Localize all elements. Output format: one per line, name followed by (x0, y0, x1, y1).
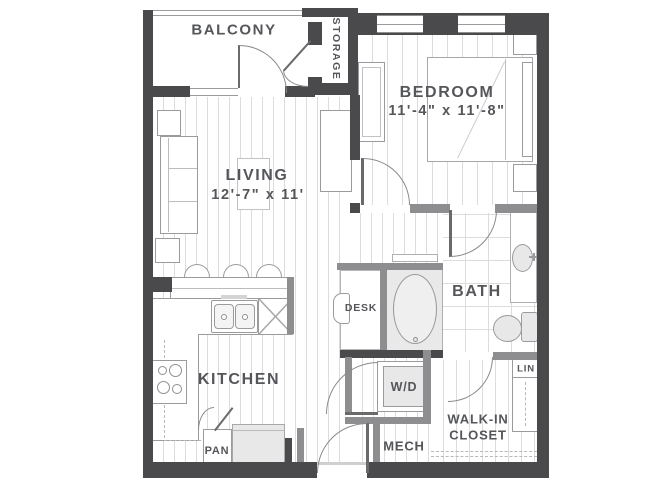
mech-label: MECH (383, 439, 424, 454)
washer-dryer-label: W/D (391, 380, 418, 394)
tub-drain (413, 337, 418, 342)
burner (157, 381, 170, 394)
balcony-fixed-glass (190, 88, 238, 96)
vanity-sink (512, 244, 533, 272)
bedroom-window (458, 15, 505, 33)
burner (172, 384, 182, 394)
wall-balcony-bottom-left (143, 86, 190, 97)
linen-label: LIN (517, 364, 535, 375)
wall-balcony-bottom-right (285, 86, 315, 97)
wall-living-bedroom (350, 95, 360, 160)
toilet-tank (521, 312, 538, 342)
closet-rod-dash (431, 456, 537, 457)
closet-rod-dash (431, 451, 537, 452)
wall-walkin-top (493, 352, 537, 360)
wall-mech-west (373, 423, 380, 462)
balcony-label: BALCONY (191, 22, 276, 39)
wall-bedroom-bottom-2 (495, 204, 537, 213)
wall-tub-west (380, 270, 387, 350)
kitchen-label: KITCHEN (198, 371, 280, 389)
sink-brand-label (221, 295, 247, 299)
bedroom-window (377, 15, 423, 33)
sofa-cushion-line (169, 201, 197, 202)
bath-label: BATH (452, 283, 502, 301)
wall-entry-stub-dark (285, 438, 292, 462)
end-table-top (157, 110, 181, 136)
wall-bedroom-bottom-1 (410, 204, 450, 213)
toilet-bowl (493, 315, 522, 342)
end-table-bottom (155, 238, 180, 263)
wall-entry-stub-gray (297, 428, 304, 462)
media-console (320, 110, 352, 192)
refrigerator-door-line (233, 430, 284, 431)
floor-plan: BALCONY STORAGE BEDROOM 11'-4" x 11'-8" … (0, 0, 650, 490)
bar-counter-edge (170, 288, 293, 289)
pantry-label: PAN (205, 445, 230, 457)
sink-drain (242, 314, 248, 320)
cabinet-dash-line (164, 440, 206, 441)
living-dimensions: 12'-7" x 11' (211, 187, 304, 203)
headboard (522, 62, 533, 157)
walkin-label-line2: CLOSET (449, 428, 507, 443)
wall-right-exterior (537, 13, 549, 478)
living-label: LIVING (226, 167, 289, 185)
walkin-label-line1: WALK-IN (447, 412, 508, 427)
desk-label: DESK (345, 302, 377, 314)
wall-desk-tub-top (337, 263, 443, 270)
balcony-door-arc (239, 45, 287, 93)
bedroom-dimensions: 11'-4" x 11'-8" (388, 103, 505, 119)
faucet (533, 253, 535, 261)
storage-label: STORAGE (330, 18, 342, 81)
sofa-back-line (168, 138, 169, 232)
wall-bottom-right (367, 462, 549, 478)
tub-shelf (392, 254, 438, 262)
burner (158, 366, 167, 375)
wall-storage-bottom (315, 83, 358, 95)
balcony-railing (153, 10, 305, 16)
wall-kitchen-stub (287, 277, 294, 334)
bathtub (393, 274, 437, 344)
wall-living-bedroom-stub (350, 203, 360, 213)
bedroom-label: BEDROOM (400, 84, 495, 102)
burner (169, 364, 182, 377)
wall-bottom-left (143, 462, 317, 478)
wall-wd-east (423, 350, 431, 417)
sink-drain (221, 314, 227, 320)
wall-counter-stub (153, 277, 172, 292)
storage-door-leaf (283, 40, 311, 71)
wall-left-exterior (143, 10, 153, 478)
linen-shelf-line (512, 377, 538, 378)
storage-door-arc (283, 70, 308, 87)
nightstand-bottom (513, 164, 537, 192)
linen-dash-line (525, 382, 526, 426)
sofa (160, 136, 198, 234)
sofa-cushion-line (169, 168, 197, 169)
dresser-inner (362, 67, 381, 137)
